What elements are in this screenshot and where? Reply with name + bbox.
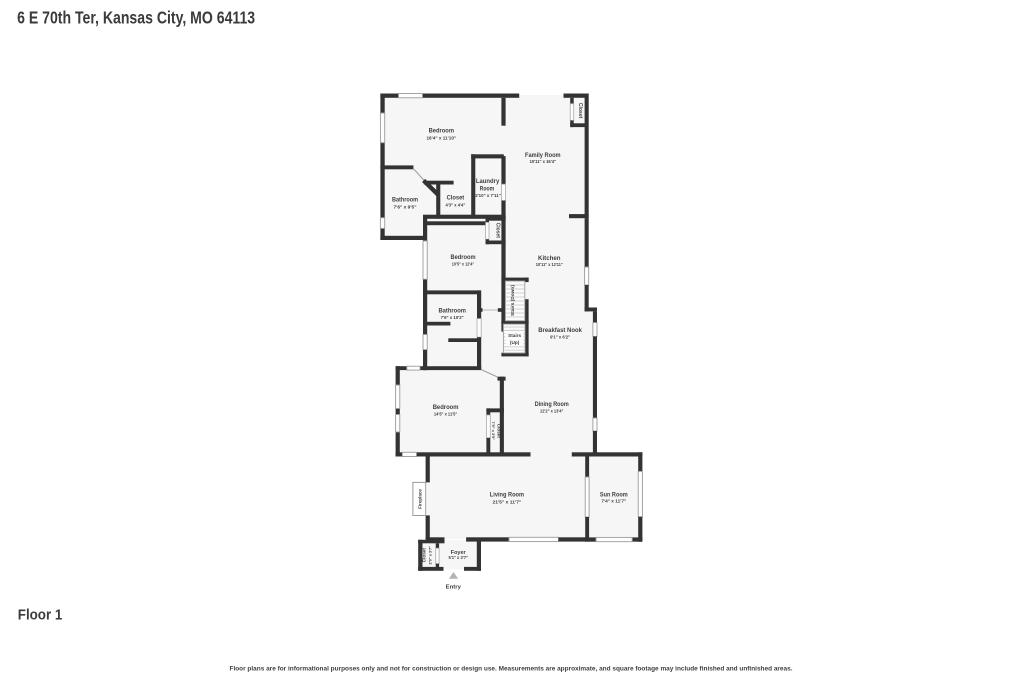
svg-text:Breakfast Nook: Breakfast Nook: [538, 327, 582, 334]
svg-text:Entry: Entry: [446, 584, 461, 590]
svg-text:Dining Room: Dining Room: [535, 401, 569, 408]
svg-text:Stairs (Down): Stairs (Down): [510, 285, 516, 316]
svg-text:Bathroom: Bathroom: [392, 196, 418, 203]
svg-text:Stairs: Stairs: [508, 333, 521, 338]
svg-text:Room: Room: [480, 186, 495, 193]
svg-text:21'5" x 11'7": 21'5" x 11'7": [493, 500, 522, 505]
svg-text:9'1" x 6'2": 9'1" x 6'2": [550, 335, 570, 340]
svg-text:Bedroom: Bedroom: [450, 254, 476, 261]
svg-text:Closet: Closet: [497, 424, 502, 439]
svg-text:Fireplace: Fireplace: [418, 489, 423, 509]
svg-text:7'6" x 10'2": 7'6" x 10'2": [441, 315, 464, 320]
svg-text:Bedroom: Bedroom: [433, 404, 459, 411]
svg-text:Bathroom: Bathroom: [438, 308, 466, 315]
svg-text:14'5" x 11'5": 14'5" x 11'5": [434, 411, 457, 416]
svg-text:5'1" x 3'7": 5'1" x 3'7": [448, 555, 468, 560]
svg-text:Living Room: Living Room: [490, 492, 525, 499]
svg-text:Closet: Closet: [422, 548, 427, 563]
svg-text:Floor plans are for informatio: Floor plans are for informational purpos…: [230, 665, 793, 672]
svg-text:Bedroom: Bedroom: [429, 128, 455, 135]
svg-text:10'11" x 16'4": 10'11" x 16'4": [530, 159, 556, 164]
svg-text:6 E 70th Ter, Kansas City, MO: 6 E 70th Ter, Kansas City, MO 64113: [17, 8, 255, 28]
svg-text:7'6" x 9'5": 7'6" x 9'5": [394, 204, 417, 209]
svg-text:7'4" x 11'7": 7'4" x 11'7": [601, 499, 626, 504]
svg-text:Closet: Closet: [577, 103, 583, 119]
svg-text:Sun Room: Sun Room: [600, 491, 628, 498]
svg-text:4'3" x 4'4": 4'3" x 4'4": [446, 202, 466, 207]
svg-text:10'11" x 12'11": 10'11" x 12'11": [536, 262, 563, 267]
svg-text:(Up): (Up): [510, 340, 520, 345]
svg-text:Closet: Closet: [494, 223, 500, 239]
svg-text:12'2" x 13'4": 12'2" x 13'4": [540, 409, 563, 414]
svg-text:Closet: Closet: [447, 195, 465, 202]
svg-text:Floor 1: Floor 1: [18, 607, 63, 623]
svg-text:16'4" x 11'10": 16'4" x 11'10": [426, 136, 456, 141]
svg-text:2'9" x 3'7": 2'9" x 3'7": [427, 546, 432, 565]
svg-text:Kitchen: Kitchen: [538, 255, 561, 262]
svg-text:7'9" x 3'9": 7'9" x 3'9": [491, 422, 496, 441]
svg-text:Laundry: Laundry: [476, 178, 500, 185]
svg-text:2'10" x 7'11": 2'10" x 7'11": [475, 193, 501, 198]
svg-text:10'5" x 12'4": 10'5" x 12'4": [452, 262, 474, 267]
